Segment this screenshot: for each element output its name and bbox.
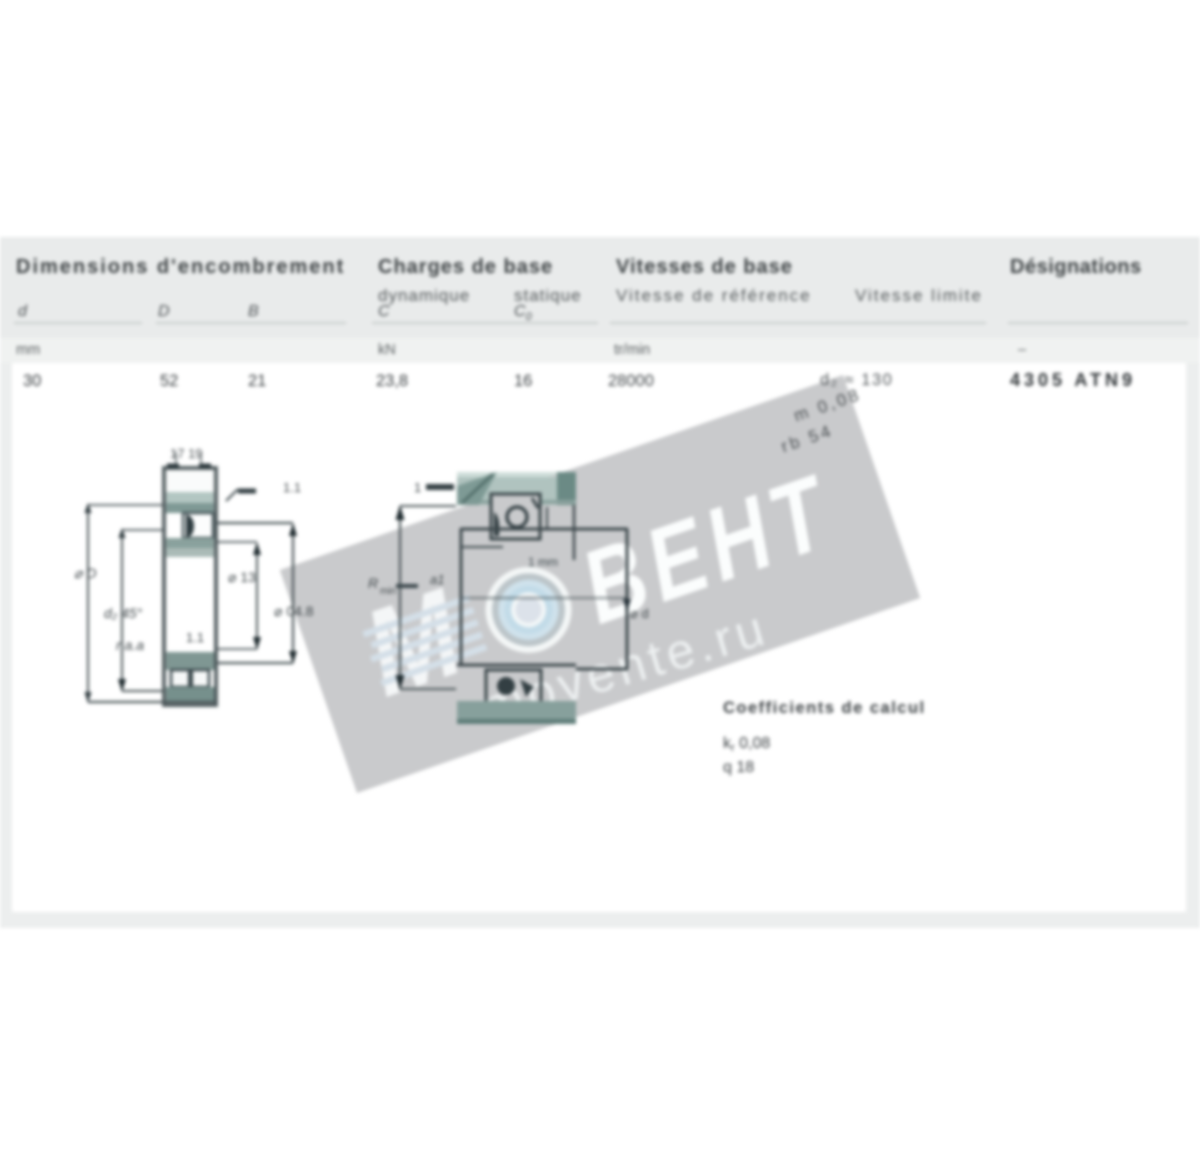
svg-text:Coefficients de calcul: Coefficients de calcul — [723, 699, 926, 717]
svg-text:r a.a: r a.a — [116, 637, 144, 653]
svg-text:1: 1 — [414, 480, 421, 495]
svg-text:d₂ 45°: d₂ 45° — [104, 605, 143, 621]
svg-text:1.1: 1.1 — [186, 630, 204, 645]
svg-text:17 19: 17 19 — [170, 446, 203, 461]
svg-text:q 18: q 18 — [723, 759, 754, 776]
svg-text:kr 0,08: kr 0,08 — [723, 735, 770, 754]
svg-text:⌀ 13: ⌀ 13 — [228, 569, 256, 585]
svg-text:1.1: 1.1 — [283, 480, 301, 495]
svg-text:⌀ D: ⌀ D — [74, 565, 96, 581]
